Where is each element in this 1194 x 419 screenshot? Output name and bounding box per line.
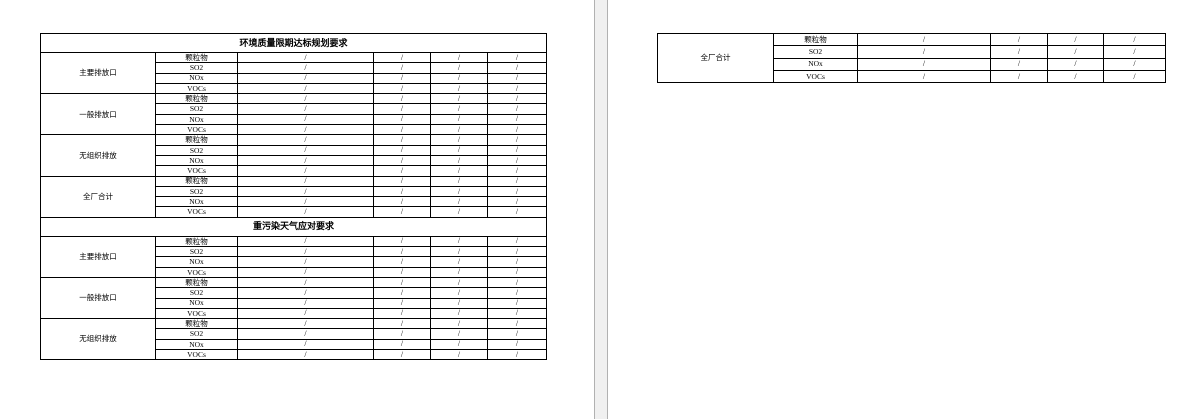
pollutant-cell: NOx (156, 114, 238, 124)
section-title: 环境质量限期达标规划要求 (41, 34, 547, 53)
value-cell: / (488, 83, 547, 93)
value-cell: / (431, 125, 488, 135)
value-cell: / (374, 197, 431, 207)
page-gap (594, 0, 608, 419)
value-cell: / (991, 34, 1048, 46)
value-cell: / (431, 257, 488, 267)
value-cell: / (238, 63, 374, 73)
value-cell: / (374, 94, 431, 104)
value-cell: / (488, 267, 547, 277)
value-cell: / (488, 53, 547, 63)
pollutant-cell: 颗粒物 (774, 34, 858, 46)
value-cell: / (488, 155, 547, 165)
value-cell: / (238, 236, 374, 246)
emissions-table-page1-slot: 环境质量限期达标规划要求主要排放口颗粒物////SO2////NOx////VO… (40, 33, 547, 360)
value-cell: / (431, 350, 488, 360)
value-cell: / (858, 34, 991, 46)
value-cell: / (488, 298, 547, 308)
value-cell: / (374, 155, 431, 165)
value-cell: / (431, 135, 488, 145)
value-cell: / (238, 135, 374, 145)
pollutant-cell: SO2 (156, 104, 238, 114)
value-cell: / (431, 236, 488, 246)
pollutant-cell: VOCs (156, 207, 238, 217)
value-cell: / (238, 53, 374, 63)
value-cell: / (1048, 46, 1104, 58)
group-label-cell: 主要排放口 (41, 236, 156, 277)
value-cell: / (488, 145, 547, 155)
group-label-cell: 全厂合计 (658, 34, 774, 83)
value-cell: / (238, 145, 374, 155)
value-cell: / (238, 319, 374, 329)
pollutant-cell: SO2 (156, 63, 238, 73)
value-cell: / (374, 83, 431, 93)
value-cell: / (374, 145, 431, 155)
value-cell: / (488, 308, 547, 318)
value-cell: / (374, 166, 431, 176)
value-cell: / (431, 308, 488, 318)
value-cell: / (238, 350, 374, 360)
value-cell: / (488, 186, 547, 196)
value-cell: / (1104, 58, 1166, 70)
value-cell: / (431, 166, 488, 176)
value-cell: / (374, 63, 431, 73)
value-cell: / (858, 70, 991, 82)
pollutant-cell: NOx (156, 339, 238, 349)
page-2: 全厂合计颗粒物////SO2////NOx////VOCs//// (608, 0, 1194, 419)
value-cell: / (488, 236, 547, 246)
value-cell: / (431, 53, 488, 63)
value-cell: / (488, 135, 547, 145)
value-cell: / (1104, 70, 1166, 82)
value-cell: / (488, 104, 547, 114)
value-cell: / (374, 247, 431, 257)
value-cell: / (431, 288, 488, 298)
value-cell: / (991, 70, 1048, 82)
value-cell: / (431, 339, 488, 349)
value-cell: / (374, 53, 431, 63)
value-cell: / (374, 176, 431, 186)
value-cell: / (374, 257, 431, 267)
value-cell: / (1048, 34, 1104, 46)
value-cell: / (991, 58, 1048, 70)
pollutant-cell: NOx (156, 73, 238, 83)
group-label-cell: 无组织排放 (41, 135, 156, 176)
value-cell: / (488, 247, 547, 257)
value-cell: / (431, 277, 488, 287)
value-cell: / (431, 298, 488, 308)
group-label-cell: 一般排放口 (41, 277, 156, 318)
value-cell: / (431, 267, 488, 277)
table-row: 一般排放口颗粒物//// (41, 94, 547, 104)
value-cell: / (488, 329, 547, 339)
pollutant-cell: VOCs (156, 350, 238, 360)
group-label-cell: 全厂合计 (41, 176, 156, 217)
value-cell: / (374, 329, 431, 339)
emissions-requirements-table: 环境质量限期达标规划要求主要排放口颗粒物////SO2////NOx////VO… (40, 33, 547, 360)
value-cell: / (431, 176, 488, 186)
pollutant-cell: VOCs (156, 125, 238, 135)
section-title: 重污染天气应对要求 (41, 217, 547, 236)
page-1: 环境质量限期达标规划要求主要排放口颗粒物////SO2////NOx////VO… (0, 0, 594, 419)
value-cell: / (374, 135, 431, 145)
value-cell: / (488, 257, 547, 267)
value-cell: / (374, 125, 431, 135)
table-row: 主要排放口颗粒物//// (41, 53, 547, 63)
group-label-cell: 一般排放口 (41, 94, 156, 135)
value-cell: / (431, 247, 488, 257)
value-cell: / (431, 114, 488, 124)
pollutant-cell: VOCs (156, 83, 238, 93)
value-cell: / (238, 247, 374, 257)
pollutant-cell: SO2 (774, 46, 858, 58)
value-cell: / (488, 125, 547, 135)
pollutant-cell: VOCs (156, 166, 238, 176)
value-cell: / (374, 350, 431, 360)
group-label-cell: 无组织排放 (41, 319, 156, 360)
section-title-row: 环境质量限期达标规划要求 (41, 34, 547, 53)
section-title-row: 重污染天气应对要求 (41, 217, 547, 236)
value-cell: / (488, 197, 547, 207)
value-cell: / (238, 329, 374, 339)
value-cell: / (374, 277, 431, 287)
value-cell: / (238, 104, 374, 114)
value-cell: / (374, 339, 431, 349)
value-cell: / (238, 257, 374, 267)
value-cell: / (858, 58, 991, 70)
pollutant-cell: VOCs (156, 308, 238, 318)
value-cell: / (238, 176, 374, 186)
value-cell: / (431, 83, 488, 93)
value-cell: / (238, 197, 374, 207)
pollutant-cell: 颗粒物 (156, 277, 238, 287)
value-cell: / (374, 298, 431, 308)
value-cell: / (374, 288, 431, 298)
value-cell: / (374, 319, 431, 329)
pollutant-cell: VOCs (774, 70, 858, 82)
value-cell: / (488, 319, 547, 329)
pollutant-cell: 颗粒物 (156, 319, 238, 329)
value-cell: / (238, 114, 374, 124)
value-cell: / (1048, 70, 1104, 82)
value-cell: / (374, 267, 431, 277)
value-cell: / (1048, 58, 1104, 70)
table-row: 全厂合计颗粒物//// (658, 34, 1166, 46)
pollutant-cell: NOx (774, 58, 858, 70)
value-cell: / (374, 114, 431, 124)
document-viewport: 环境质量限期达标规划要求主要排放口颗粒物////SO2////NOx////VO… (0, 0, 1194, 419)
emissions-requirements-table-continued: 全厂合计颗粒物////SO2////NOx////VOCs//// (657, 33, 1166, 83)
table-row: 一般排放口颗粒物//// (41, 277, 547, 287)
value-cell: / (238, 277, 374, 287)
pollutant-cell: VOCs (156, 267, 238, 277)
pollutant-cell: SO2 (156, 288, 238, 298)
value-cell: / (238, 288, 374, 298)
pollutant-cell: 颗粒物 (156, 94, 238, 104)
value-cell: / (431, 73, 488, 83)
value-cell: / (374, 73, 431, 83)
value-cell: / (488, 339, 547, 349)
value-cell: / (431, 186, 488, 196)
table-row: 无组织排放颗粒物//// (41, 319, 547, 329)
value-cell: / (374, 308, 431, 318)
value-cell: / (488, 73, 547, 83)
table-row: 无组织排放颗粒物//// (41, 135, 547, 145)
value-cell: / (488, 94, 547, 104)
value-cell: / (238, 339, 374, 349)
value-cell: / (238, 125, 374, 135)
value-cell: / (488, 176, 547, 186)
table-row: 主要排放口颗粒物//// (41, 236, 547, 246)
pollutant-cell: 颗粒物 (156, 176, 238, 186)
pollutant-cell: NOx (156, 197, 238, 207)
value-cell: / (991, 46, 1048, 58)
value-cell: / (431, 207, 488, 217)
group-label-cell: 主要排放口 (41, 53, 156, 94)
value-cell: / (238, 73, 374, 83)
value-cell: / (238, 207, 374, 217)
value-cell: / (488, 207, 547, 217)
pollutant-cell: 颗粒物 (156, 135, 238, 145)
value-cell: / (431, 94, 488, 104)
value-cell: / (374, 207, 431, 217)
value-cell: / (431, 145, 488, 155)
value-cell: / (374, 104, 431, 114)
value-cell: / (238, 298, 374, 308)
value-cell: / (488, 166, 547, 176)
pollutant-cell: SO2 (156, 247, 238, 257)
value-cell: / (238, 94, 374, 104)
value-cell: / (488, 114, 547, 124)
pollutant-cell: NOx (156, 257, 238, 267)
value-cell: / (488, 277, 547, 287)
pollutant-cell: SO2 (156, 329, 238, 339)
pollutant-cell: SO2 (156, 145, 238, 155)
pollutant-cell: 颗粒物 (156, 53, 238, 63)
value-cell: / (488, 288, 547, 298)
value-cell: / (1104, 46, 1166, 58)
value-cell: / (488, 350, 547, 360)
value-cell: / (431, 197, 488, 207)
value-cell: / (238, 166, 374, 176)
value-cell: / (431, 63, 488, 73)
value-cell: / (858, 46, 991, 58)
table-row: 全厂合计颗粒物//// (41, 176, 547, 186)
value-cell: / (374, 186, 431, 196)
value-cell: / (238, 83, 374, 93)
value-cell: / (431, 104, 488, 114)
value-cell: / (431, 329, 488, 339)
value-cell: / (238, 155, 374, 165)
pollutant-cell: SO2 (156, 186, 238, 196)
pollutant-cell: 颗粒物 (156, 236, 238, 246)
value-cell: / (238, 186, 374, 196)
pollutant-cell: NOx (156, 155, 238, 165)
value-cell: / (374, 236, 431, 246)
emissions-table-page2-slot: 全厂合计颗粒物////SO2////NOx////VOCs//// (657, 33, 1166, 83)
value-cell: / (431, 155, 488, 165)
pollutant-cell: NOx (156, 298, 238, 308)
value-cell: / (238, 267, 374, 277)
value-cell: / (488, 63, 547, 73)
value-cell: / (1104, 34, 1166, 46)
value-cell: / (238, 308, 374, 318)
value-cell: / (431, 319, 488, 329)
